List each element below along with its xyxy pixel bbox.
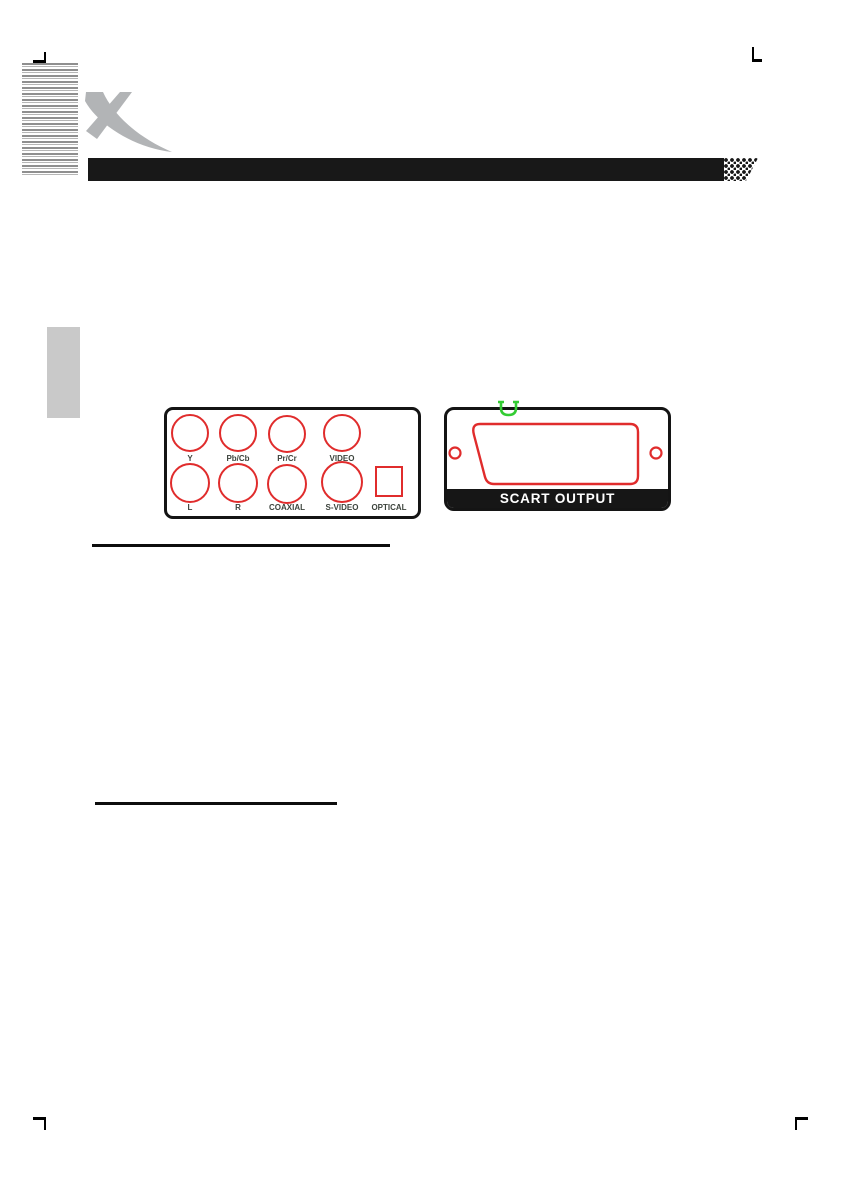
logo-stripes — [22, 63, 78, 177]
header-bar — [88, 158, 724, 181]
green-u-marker-icon — [497, 399, 520, 419]
crop-mark-top-right — [752, 47, 762, 62]
manual-page: { "av_panel": { "jacks_top": ["Y", "Pb/C… — [0, 0, 841, 1191]
jack-audio-left — [170, 463, 210, 503]
brand-x-logo-icon — [84, 92, 174, 156]
crop-mark-top-left — [33, 52, 46, 63]
crop-mark-bottom-right — [795, 1117, 808, 1130]
jack-label-y: Y — [164, 454, 216, 463]
screw-hole-left-icon — [450, 448, 461, 459]
jack-label-svideo: S-VIDEO — [316, 503, 368, 512]
scart-output-label: SCART OUTPUT — [447, 489, 668, 508]
jack-optical — [375, 466, 403, 497]
jack-label-optical: OPTICAL — [363, 503, 415, 512]
section-underline-2 — [95, 802, 337, 805]
jack-label-left: L — [164, 503, 216, 512]
jack-audio-right — [218, 463, 258, 503]
jack-prcr — [268, 415, 306, 453]
jack-svideo — [321, 461, 363, 503]
header-bar-halftone-fade — [718, 158, 758, 181]
chapter-tab-marker — [47, 327, 80, 418]
jack-label-right: R — [212, 503, 264, 512]
crop-mark-bottom-left — [33, 1117, 46, 1130]
av-output-panel-diagram: Y Pb/Cb Pr/Cr VIDEO L R COAXIAL S-VIDEO … — [164, 407, 421, 519]
screw-hole-right-icon — [651, 448, 662, 459]
scart-output-panel-diagram: SCART OUTPUT — [444, 407, 671, 511]
jack-label-prcr: Pr/Cr — [261, 454, 313, 463]
jack-label-coaxial: COAXIAL — [261, 503, 313, 512]
jack-y — [171, 414, 209, 452]
section-underline-1 — [92, 544, 390, 547]
jack-label-pbcb: Pb/Cb — [212, 454, 264, 463]
jack-coaxial — [267, 464, 307, 504]
jack-pbcb — [219, 414, 257, 452]
jack-video — [323, 414, 361, 452]
